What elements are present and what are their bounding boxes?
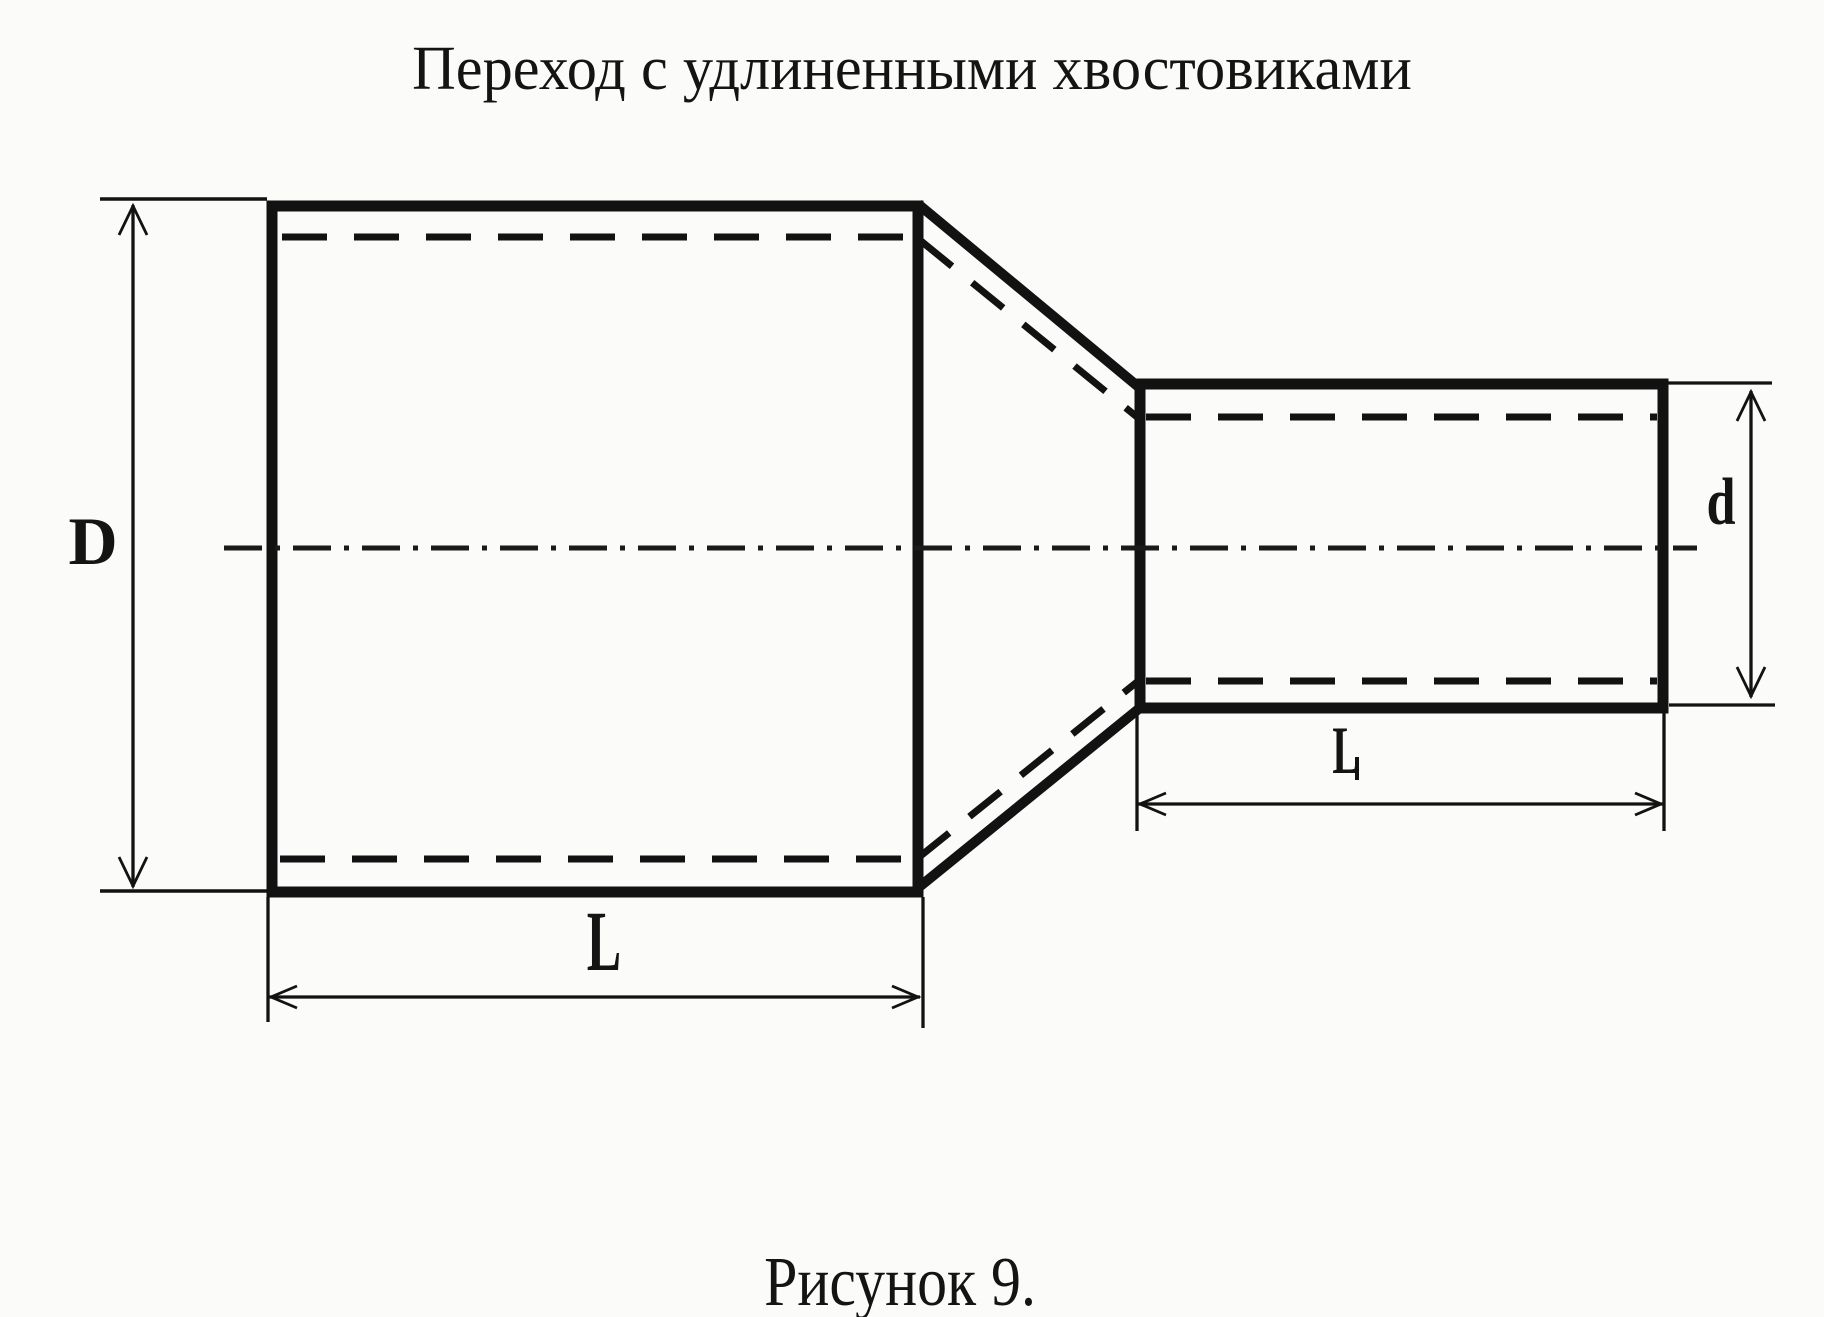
svg-text:d: d (1706, 464, 1735, 539)
svg-text:Рисунок 9.: Рисунок 9. (764, 1244, 1036, 1317)
svg-text:L: L (587, 895, 621, 990)
svg-text:Переход с удлиненными хвостови: Переход с удлиненными хвостовиками (412, 34, 1412, 103)
svg-text:D: D (68, 503, 117, 579)
